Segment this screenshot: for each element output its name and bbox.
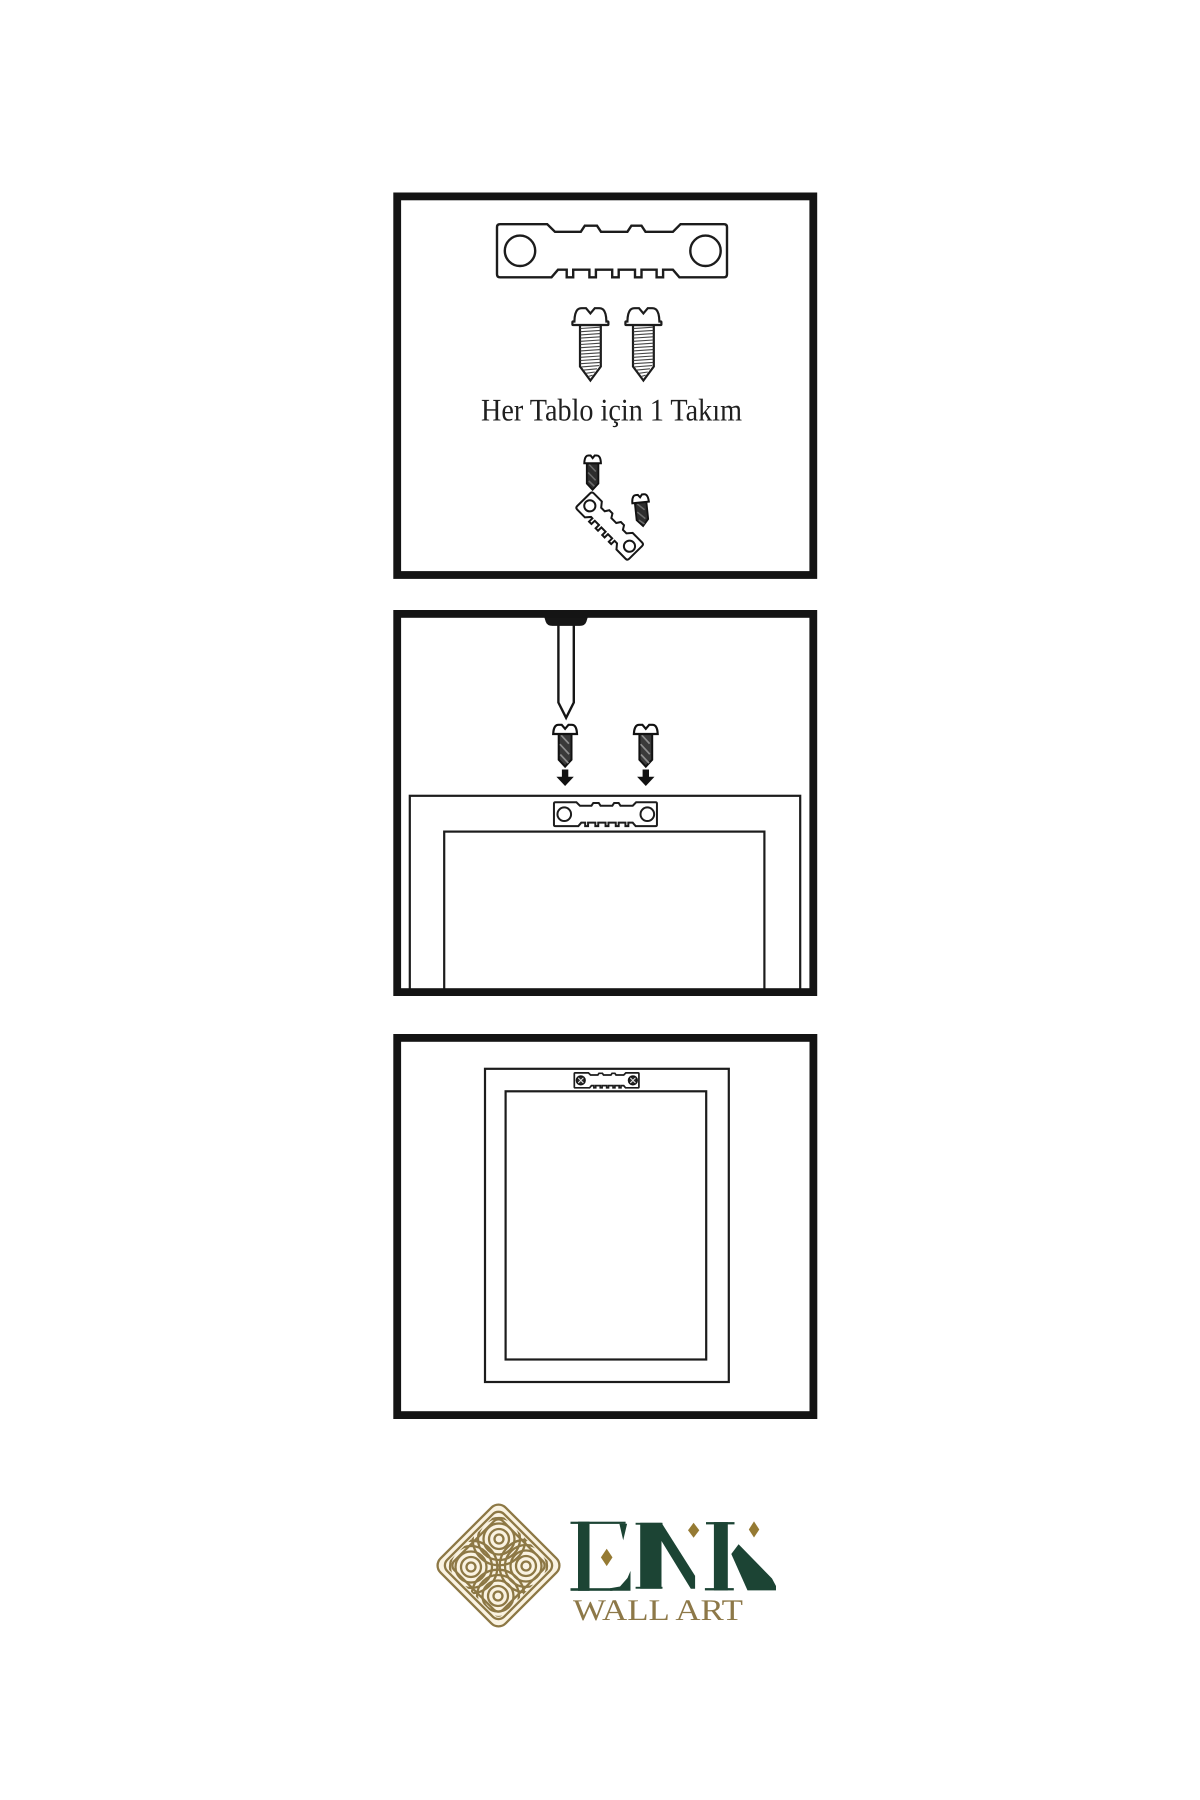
svg-text:Her Tablo için 1 Takım: Her Tablo için 1 Takım xyxy=(481,393,742,428)
svg-text:WALL ART: WALL ART xyxy=(573,1594,743,1627)
